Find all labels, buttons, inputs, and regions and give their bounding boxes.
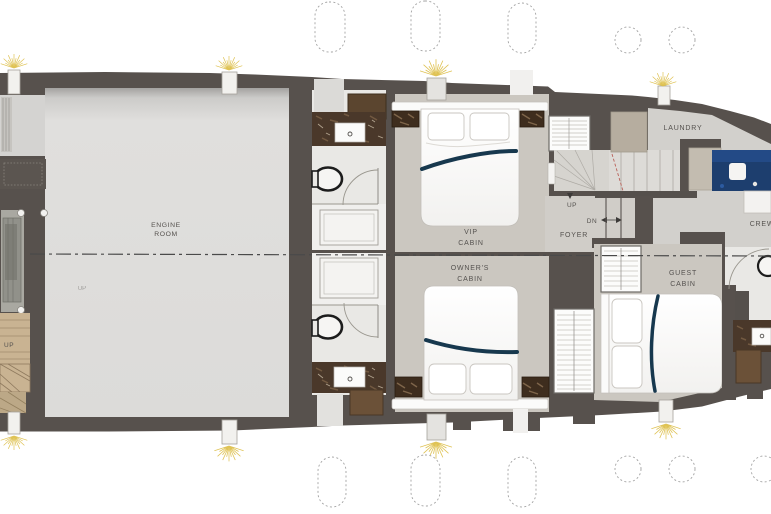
svg-text:ROOM: ROOM xyxy=(154,231,178,238)
svg-text:CABIN: CABIN xyxy=(458,240,483,247)
svg-text:DN: DN xyxy=(587,218,597,225)
svg-text:UP: UP xyxy=(4,342,14,349)
svg-text:GUEST: GUEST xyxy=(669,270,697,277)
svg-text:CABIN: CABIN xyxy=(457,276,482,283)
svg-text:VIP: VIP xyxy=(464,229,478,236)
svg-text:UP: UP xyxy=(567,202,577,209)
svg-text:OWNER'S: OWNER'S xyxy=(451,265,489,272)
svg-text:UP: UP xyxy=(78,286,86,292)
svg-text:CABIN: CABIN xyxy=(670,281,695,288)
svg-text:CREW: CREW xyxy=(750,221,771,228)
svg-text:ENGINE: ENGINE xyxy=(151,222,181,229)
svg-text:FOYER: FOYER xyxy=(560,232,588,239)
svg-text:LAUNDRY: LAUNDRY xyxy=(664,125,703,132)
